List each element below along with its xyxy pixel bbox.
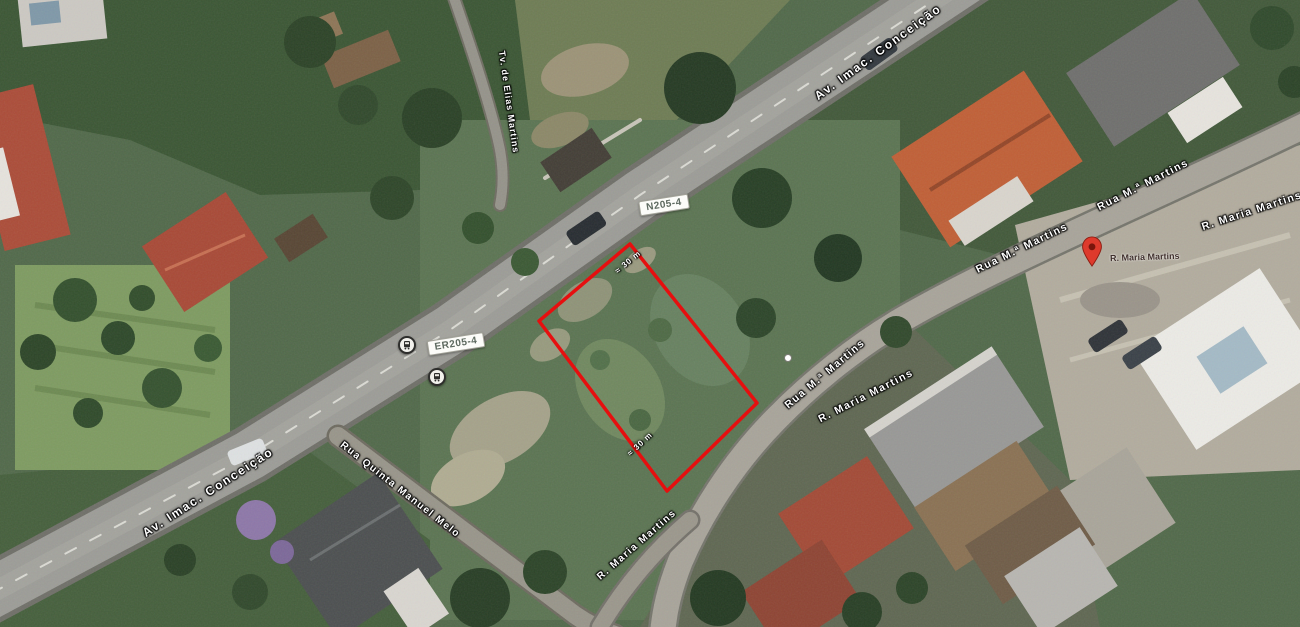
road-marker-dot	[784, 354, 792, 362]
bus-glyph	[432, 372, 442, 382]
satellite-map-canvas[interactable]: N205-4 ER205-4 Av. Imac. Conceição Av. I…	[0, 0, 1300, 627]
bus-stop-icon[interactable]	[398, 336, 416, 354]
bus-stop-icon[interactable]	[428, 368, 446, 386]
bus-glyph	[402, 340, 412, 350]
place-pin-icon[interactable]	[1081, 236, 1104, 273]
